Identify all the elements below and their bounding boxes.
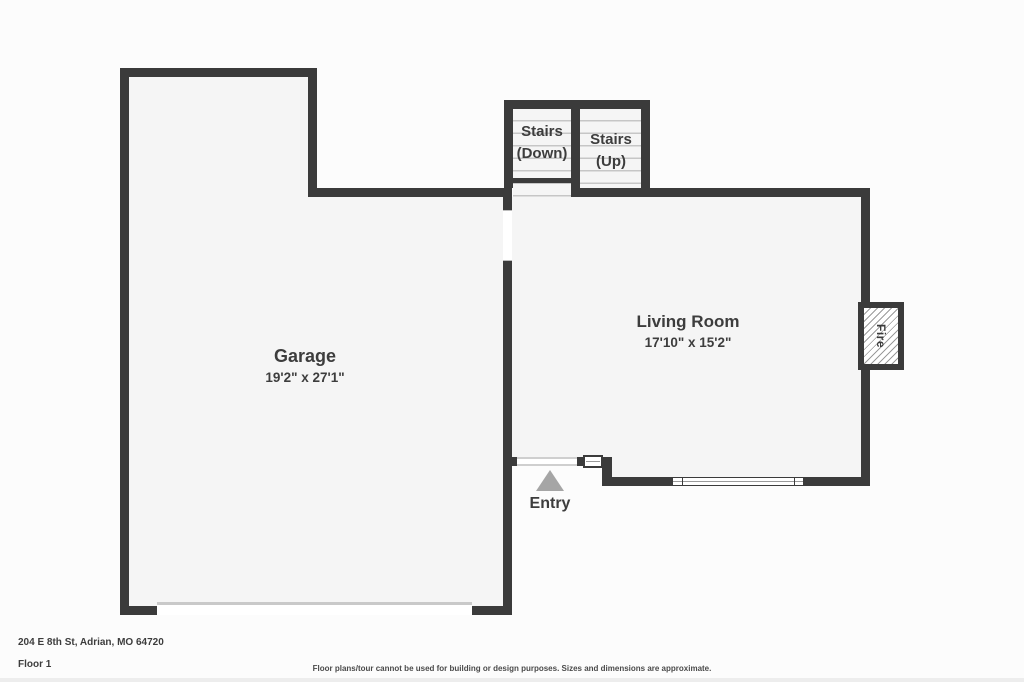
room-dims-living: 17'10" x 15'2" (608, 335, 768, 350)
fireplace-icon: Fire (858, 302, 904, 370)
floor-plan-page: Fire Garage 19'2" x 27'1" Living Room 17… (0, 0, 1024, 682)
stairs-up-line2: (Up) (577, 151, 645, 173)
garage-label: Garage 19'2" x 27'1" (225, 346, 385, 385)
entry-arrow-icon (536, 470, 564, 491)
living-top-wall (571, 188, 870, 197)
footer-strip (0, 678, 1024, 682)
room-name-garage: Garage (225, 346, 385, 367)
fireplace-hatch: Fire (864, 308, 898, 364)
property-address: 204 E 8th St, Adrian, MO 64720 (18, 637, 164, 648)
garage-floor-lower (124, 192, 507, 609)
room-dims-garage: 19'2" x 27'1" (225, 370, 385, 385)
front-door-icon (583, 455, 603, 468)
living-room-label: Living Room 17'10" x 15'2" (608, 312, 768, 350)
stairs-down-bottom-wall (513, 178, 571, 183)
garage-door-opening (157, 605, 472, 615)
stairs-down-line2: (Down) (507, 143, 577, 165)
garage-left-wall (120, 68, 129, 615)
fireplace-label: Fire (874, 324, 888, 348)
disclaimer-text: Floor plans/tour cannot be used for buil… (0, 664, 1024, 673)
garage-step-wall (308, 188, 512, 197)
entry-label: Entry (510, 495, 590, 513)
room-name-living: Living Room (608, 312, 768, 332)
garage-interior-door-opening (503, 210, 512, 261)
stairs-down-label: Stairs (Down) (507, 121, 577, 165)
garage-upper-right-wall (308, 68, 317, 197)
garage-top-wall (120, 68, 317, 77)
entry-door-opening (517, 457, 577, 466)
stairs-up-label: Stairs (Up) (577, 129, 645, 173)
stairs-up-line1: Stairs (577, 129, 645, 151)
window-icon (672, 477, 804, 486)
stairs-down-line1: Stairs (507, 121, 577, 143)
